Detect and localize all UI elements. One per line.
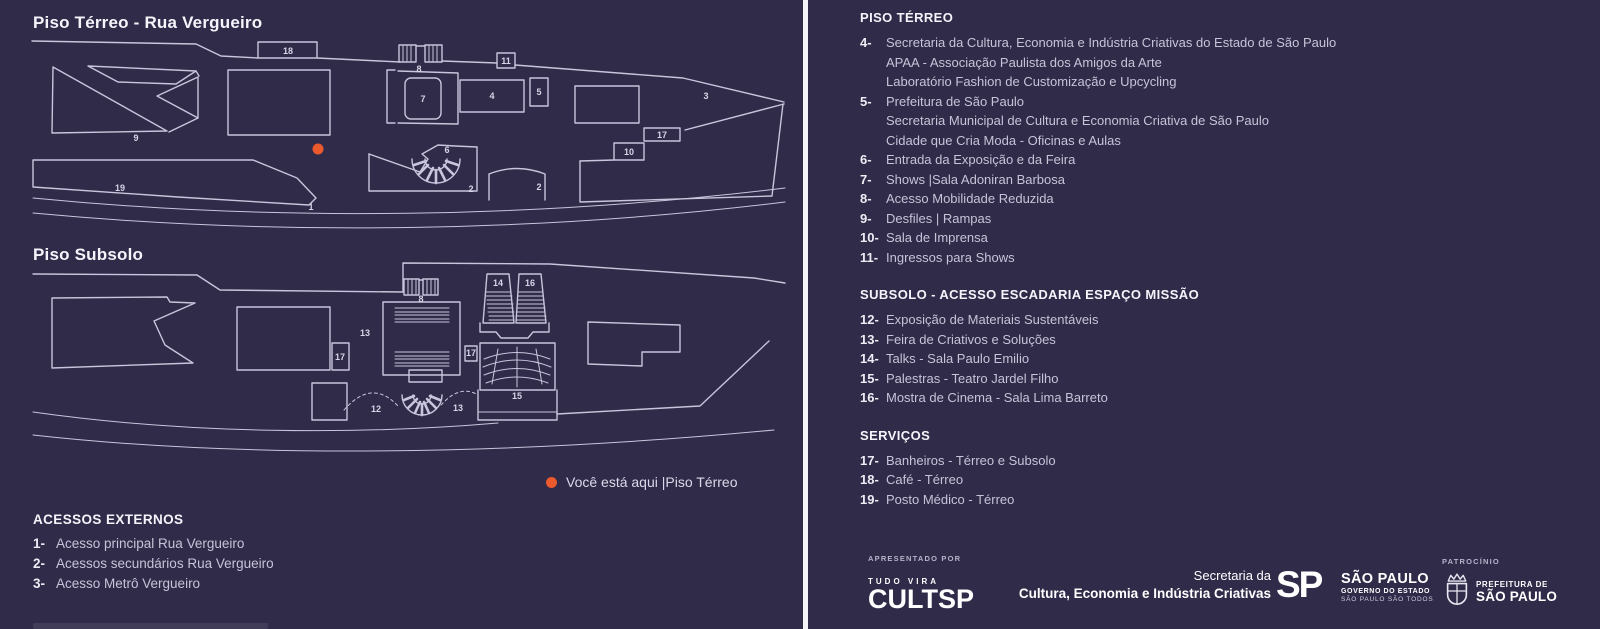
stairs-6-entrada [369,145,477,191]
legend-item-number: 17- [860,451,886,471]
legend-sections: PISO TÉRREO 4-Secretaria da Cultura, Eco… [860,10,1560,529]
legend-item: Secretaria Municipal de Cultura e Econom… [860,111,1560,131]
legend-item-number: 14- [860,349,886,369]
legend-item: 12-Exposição de Materiais Sustentáveis [860,310,1560,330]
map-number-label: 17 [335,352,345,362]
teatro-jardel-filho-15 [478,343,557,420]
legend-item: 13-Feira de Criativos e Soluções [860,330,1560,350]
subsolo-site-outline [33,263,785,451]
section-header: PISO TÉRREO [860,10,1560,25]
map-number-label: 19 [115,183,125,193]
map-number-label: 13 [453,403,463,413]
governo-sao-paulo-logo: SÃO PAULO GOVERNO DO ESTADO SÃO PAULO SÃ… [1341,571,1434,603]
legend-item-text: Acesso principal Rua Vergueiro [56,536,244,551]
map-number-label: 13 [360,328,370,338]
legend-item: 1-Acesso principal Rua Vergueiro [33,534,433,554]
map-number-label: 12 [371,404,381,414]
subsolo-floorplan: 81317141617151213 [28,262,798,457]
subsolo-left-hall [52,297,195,368]
legend-item: 18-Café - Térreo [860,470,1560,490]
map-panel: Piso Térreo - Rua Vergueiro [0,0,801,629]
pref-line2: SÃO PAULO [1476,589,1557,604]
map-number-label: 9 [133,133,138,143]
legend-item: 10-Sala de Imprensa [860,228,1560,248]
legend-item: 14-Talks - Sala Paulo Emilio [860,349,1560,369]
legend-item-number: 11- [860,248,886,268]
map-number-label: 8 [416,64,421,74]
section-list: 12-Exposição de Materiais Sustentáveis13… [860,310,1560,408]
legend-item-text: Posto Médico - Térreo [886,492,1014,507]
section-subsolo: SUBSOLO - ACESSO ESCADARIA ESPAÇO MISSÃO… [860,287,1560,408]
you-are-here-marker [313,144,324,155]
room-unnumbered [575,86,639,123]
legend-item: 4-Secretaria da Cultura, Economia e Indú… [860,33,1560,53]
legend-item-text: Exposição de Materiais Sustentáveis [886,312,1098,327]
legend-item-text: Prefeitura de São Paulo [886,94,1024,109]
map-number-label: 7 [420,94,425,104]
legend-item-text: Secretaria Municipal de Cultura e Econom… [886,113,1269,128]
secretaria-line1: Secretaria da [1003,568,1271,583]
legend-item-text: Laboratório Fashion de Customização e Up… [886,74,1177,89]
entrance-8-stairs-subsolo [404,279,438,295]
legend-item-text: Cidade que Cria Moda - Oficinas e Aulas [886,133,1121,148]
section-header: SERVIÇOS [860,428,1560,443]
section-list: 17-Banheiros - Térreo e Subsolo18-Café -… [860,451,1560,510]
prefeitura-sao-paulo-logo: PREFEITURA DE SÃO PAULO [1476,580,1557,604]
section-list: 4-Secretaria da Cultura, Economia e Indú… [860,33,1560,267]
legend-item-text: Acessos secundários Rua Vergueiro [56,556,274,571]
legend-item-number: 12- [860,310,886,330]
legend-item-number: 18- [860,470,886,490]
pref-line1: PREFEITURA DE [1476,580,1557,589]
legend-item: 8-Acesso Mobilidade Reduzida [860,189,1560,209]
map-number-label: 1 [308,202,313,212]
map-number-label: 3 [703,91,708,101]
legend-item: 11-Ingressos para Shows [860,248,1560,268]
ramps-9 [52,66,199,133]
section-header: SUBSOLO - ACESSO ESCADARIA ESPAÇO MISSÃO [860,287,1560,302]
map-number-label: 4 [489,91,494,101]
legend-item-number: 8- [860,189,886,209]
legend-item-text: Ingressos para Shows [886,250,1015,265]
legend-item-number: 6- [860,150,886,170]
acessos-list: 1-Acesso principal Rua Vergueiro2-Acesso… [33,534,433,594]
strip-19-posto-medico [33,160,316,205]
legend-item-text: Acesso Mobilidade Reduzida [886,191,1054,206]
legend-item: Cidade que Cria Moda - Oficinas e Aulas [860,131,1560,151]
subsolo-number-labels: 81317141617151213 [335,278,535,414]
subsolo-room-block [237,307,330,370]
legend-item: 3-Acesso Metrô Vergueiro [33,574,433,594]
legend-item-text: Acesso Metrô Vergueiro [56,576,200,591]
gov-name: SÃO PAULO [1341,571,1434,587]
sponsors-footer: APRESENTADO POR TUDO VIRA CULTSP Secreta… [808,540,1600,629]
right-room-outline [580,104,783,202]
clipped-bottom-text [33,623,268,629]
gov-sub1: GOVERNO DO ESTADO [1341,588,1434,595]
foyer-connector [480,323,549,338]
legend-item: APAA - Associação Paulista dos Amigos da… [860,53,1560,73]
legend-panel: PISO TÉRREO 4-Secretaria da Cultura, Eco… [808,0,1600,629]
map-number-label: 2 [468,184,473,194]
legend-item: Laboratório Fashion de Customização e Up… [860,72,1560,92]
legend-item-text: Sala de Imprensa [886,230,988,245]
legend-item-number: 3- [33,574,56,594]
legend-item-number: 4- [860,33,886,53]
legend-item-number: 16- [860,388,886,408]
legend-item-number: 2- [33,554,56,574]
legend-item-text: Feira de Criativos e Soluções [886,332,1056,347]
secretaria-line2: Cultura, Economia e Indústria Criativas [1003,586,1271,601]
patrocinio-label: PATROCÍNIO [1442,557,1500,566]
cultsp-logo: TUDO VIRA CULTSP [868,577,974,612]
legend-item: 2-Acessos secundários Rua Vergueiro [33,554,433,574]
legend-item-text: Palestras - Teatro Jardel Filho [886,371,1058,386]
legend-item: 5-Prefeitura de São Paulo [860,92,1560,112]
room-block [228,70,330,135]
apresentado-por-label: APRESENTADO POR [868,554,961,563]
map-number-label: 18 [283,46,293,56]
legend-item: 6-Entrada da Exposição e da Feira [860,150,1560,170]
gov-sub2: SÃO PAULO SÃO TODOS [1341,596,1434,603]
legend-item-text: Talks - Sala Paulo Emilio [886,351,1029,366]
legend-item-number: 19- [860,490,886,510]
legend-item-text: APAA - Associação Paulista dos Amigos da… [886,55,1162,70]
legend-item-text: Café - Térreo [886,472,963,487]
legend-item: 7-Shows |Sala Adoniran Barbosa [860,170,1560,190]
map-number-label: 17 [657,130,667,140]
legend-item-number: 9- [860,209,886,229]
legend-item: 19-Posto Médico - Térreo [860,490,1560,510]
cultsp-logo-wordmark: CULTSP [868,586,974,612]
map-number-label: 10 [624,147,634,157]
you-are-here-dot-icon [546,477,557,488]
legend-item: 16-Mostra de Cinema - Sala Lima Barreto [860,388,1560,408]
legend-item-text: Secretaria da Cultura, Economia e Indúst… [886,35,1336,50]
legend-item-text: Entrada da Exposição e da Feira [886,152,1075,167]
map-number-label: 11 [501,56,511,66]
legend-item-number: 7- [860,170,886,190]
legend-item-text: Banheiros - Térreo e Subsolo [886,453,1056,468]
you-are-here-legend: Você está aqui |Piso Térreo [546,474,737,490]
subsolo-central-hall [383,302,460,382]
subsolo-right-room [588,322,680,366]
legend-item-number: 15- [860,369,886,389]
legend-item-text: Shows |Sala Adoniran Barbosa [886,172,1065,187]
legend-item: 17-Banheiros - Térreo e Subsolo [860,451,1560,471]
legend-item-text: Mostra de Cinema - Sala Lima Barreto [886,390,1108,405]
subsolo-small-room [312,383,347,420]
map-number-label: 16 [525,278,535,288]
legend-item: 9-Desfiles | Rampas [860,209,1560,229]
legend-item-text: Desfiles | Rampas [886,211,991,226]
map-number-label: 6 [444,145,449,155]
entrance-8-stairs [399,45,442,62]
legend-item-number: 10- [860,228,886,248]
prefeitura-crest-icon [1442,572,1472,610]
map-number-label: 15 [512,391,522,401]
terreo-floorplan: 18811974531710622191 [28,30,798,235]
sp-logo: SP [1276,564,1321,606]
legend-item-number: 13- [860,330,886,350]
fan-stairs-subsolo [402,395,442,415]
map-number-label: 5 [536,87,541,97]
acessos-header: ACESSOS EXTERNOS [33,512,433,527]
legend-item: 15-Palestras - Teatro Jardel Filho [860,369,1560,389]
map-number-label: 17 [466,348,476,358]
legend-item-number: 1- [33,534,56,554]
acessos-externos-section: ACESSOS EXTERNOS 1-Acesso principal Rua … [33,512,433,594]
section-piso-terreo: PISO TÉRREO 4-Secretaria da Cultura, Eco… [860,10,1560,267]
you-are-here-label: Você está aqui |Piso Térreo [566,474,737,490]
map-number-label: 2 [536,182,541,192]
legend-item-number: 5- [860,92,886,112]
secretaria-cultura-label: Secretaria da Cultura, Economia e Indúst… [1003,568,1271,601]
map-number-label: 8 [418,294,423,304]
map-number-label: 14 [493,278,503,288]
section-servicos: SERVIÇOS 17-Banheiros - Térreo e Subsolo… [860,428,1560,510]
